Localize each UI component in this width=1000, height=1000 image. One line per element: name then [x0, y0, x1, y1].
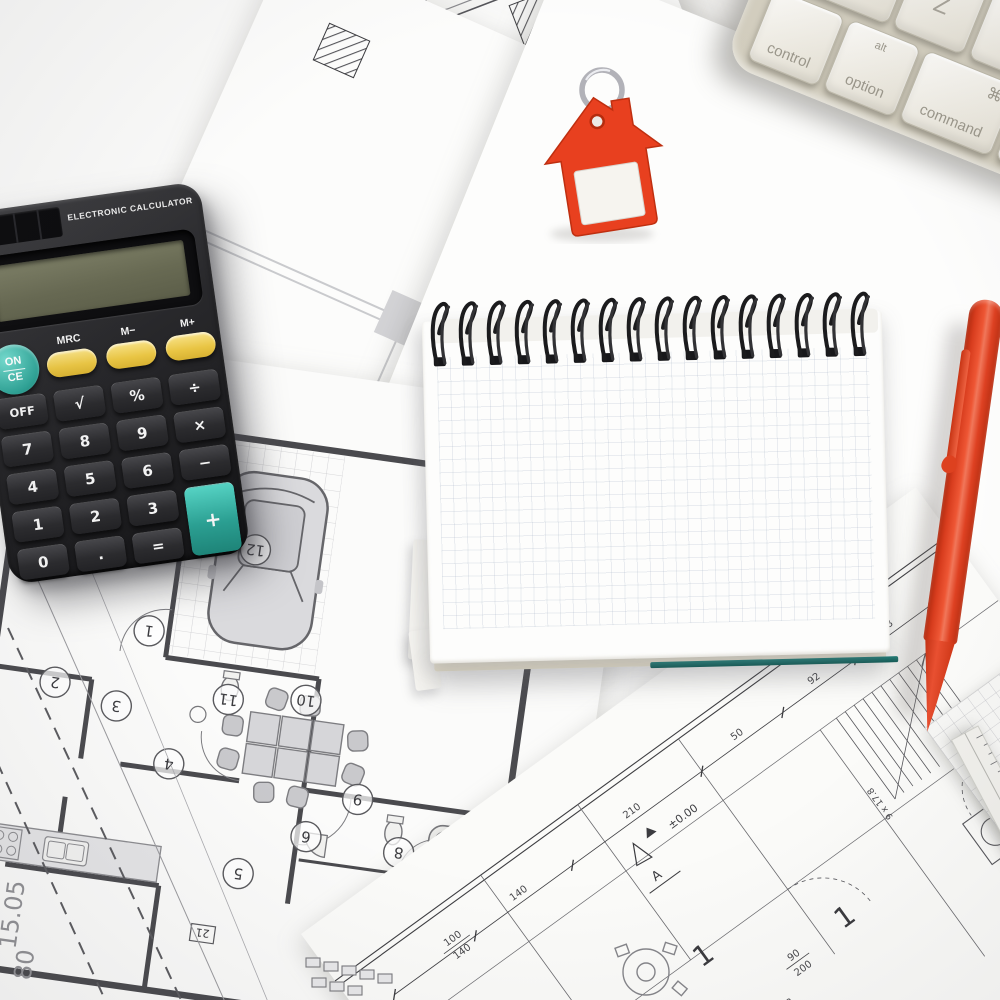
divide-key: ÷	[168, 368, 222, 406]
minus-key: −	[178, 444, 232, 482]
digit-2-key: 2	[69, 497, 123, 535]
sqrt-key: √	[53, 384, 107, 422]
dimension-label: 80	[8, 948, 40, 982]
solar-panel	[0, 207, 63, 250]
m-minus-key	[105, 339, 158, 371]
m-plus-label: M+	[162, 314, 213, 333]
calculator-brand: ELECTRONIC CALCULATOR	[62, 194, 198, 223]
off-key: OFF	[0, 392, 49, 430]
digit-1-key: 1	[11, 505, 65, 543]
house-keychain	[540, 44, 710, 244]
house-tag	[540, 88, 674, 239]
digit-3-key: 3	[126, 489, 180, 527]
m-plus-key	[164, 330, 217, 362]
room-number: 10	[295, 690, 316, 710]
mrc-key	[45, 347, 98, 379]
digit-5-key: 5	[63, 460, 117, 498]
spiral-binding	[429, 288, 883, 375]
house-tag-label	[574, 162, 646, 225]
digit-0-key: 0	[16, 543, 70, 581]
notebook-grid-paper	[437, 347, 876, 629]
ce-label: CE	[7, 370, 24, 385]
digit-7-key: 7	[1, 430, 55, 468]
digit-6-key: 6	[121, 452, 175, 490]
decimal-key: .	[74, 535, 128, 573]
room-number: 12	[245, 540, 266, 560]
on-ce-key: ON CE	[0, 341, 42, 397]
multiply-key: ×	[173, 406, 227, 444]
room-number: 11	[218, 689, 239, 709]
percent-key: %	[110, 376, 164, 414]
digit-8-key: 8	[58, 422, 112, 460]
digit-9-key: 9	[115, 414, 169, 452]
on-label: ON	[4, 354, 22, 369]
house-tag-hole	[590, 114, 605, 129]
spiral-notebook	[415, 288, 896, 691]
desk-photo-scene: 200 25 55 80 60/200 1.535 93 6 1	[0, 0, 1000, 1000]
mrc-label: MRC	[43, 330, 94, 349]
plus-key: +	[183, 481, 242, 556]
digit-4-key: 4	[6, 468, 60, 506]
m-minus-label: M−	[102, 322, 153, 341]
label-21: 21	[195, 925, 211, 940]
calculator-display	[0, 240, 191, 322]
equals-key: =	[131, 527, 185, 565]
command-symbol-icon: ⌘	[984, 83, 1000, 108]
